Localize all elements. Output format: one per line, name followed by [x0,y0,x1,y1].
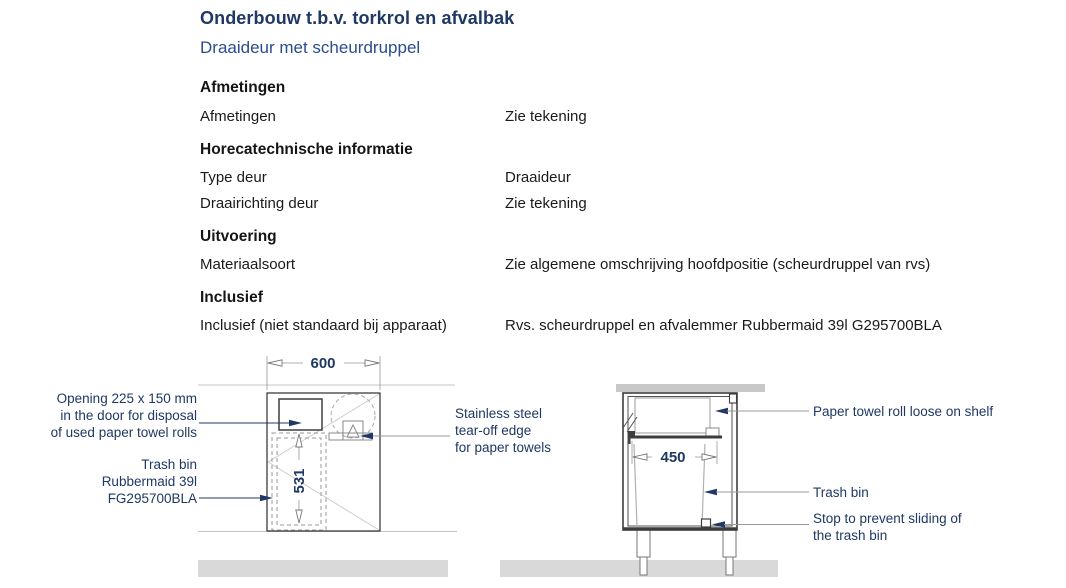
spec-value: Zie tekening [505,108,587,125]
worktop-bar [616,384,765,392]
dimension-600: 600 [267,355,380,390]
trash-bin-dashed [272,433,326,530]
annotation-tear-off: Stainless steel tear-off edge for paper … [455,405,551,456]
leader-trash-bin [199,495,273,501]
spec-value: Rvs. scheurdruppel en afvalemmer Rubberm… [505,317,942,334]
leader-tear-off [360,433,450,439]
tear-off-bracket [329,433,372,440]
annotation-stop: Stop to prevent sliding of the trash bin [813,510,962,544]
spec-label: Materiaalsoort [200,256,295,273]
bin-wall-left [634,444,637,526]
cabinet-outline [267,393,380,531]
bin-wall-right [702,444,705,526]
door-opening [279,399,322,430]
spec-label: Draairichting deur [200,195,318,212]
cabinet-inner [628,397,732,527]
cabinet-outer [623,393,737,530]
front-view-drawing: 600 531 [198,355,457,577]
tear-off-triangle [347,425,359,437]
floor-bar-right [500,560,778,577]
towel-roll [635,398,710,433]
bin-stop [702,519,711,527]
door-swing-line [268,394,379,462]
section-heading-uitvoering: Uitvoering [200,228,277,246]
leader-stop [712,521,809,527]
spec-value: Zie tekening [505,195,587,212]
floor-bar-left [198,560,448,577]
leader-roll [715,408,809,414]
hinge-notch [730,394,737,403]
towel-roll-dashed [331,394,375,438]
page-subtitle: Draaideur met scheurdruppel [200,38,420,58]
leader-trash-bin-side [704,489,809,495]
page-title: Onderbouw t.b.v. torkrol en afvalbak [200,8,514,29]
section-heading-horecatechnische-informatie: Horecatechnische informatie [200,141,413,159]
section-heading-inclusief: Inclusief [200,289,263,307]
cabinet-legs [637,530,736,575]
dimension-531-text: 531 [291,468,308,493]
annotation-trash-bin-front: Trash bin Rubbermaid 39l FG295700BLA [102,456,197,507]
annotation-trash-bin-side: Trash bin [813,484,869,501]
spec-label: Afmetingen [200,108,276,125]
spec-sheet-page: Onderbouw t.b.v. torkrol en afvalbak Dra… [0,0,1066,588]
dimension-531: 531 [291,434,308,523]
tear-off-box [343,421,363,440]
roll-stop-block [706,428,719,437]
door-swing-line [268,462,379,530]
trash-bin-dashed-inner [277,438,321,525]
dimension-450-text: 450 [660,449,685,466]
section-heading-afmetingen: Afmetingen [200,79,285,97]
spec-value: Zie algemene omschrijving hoofdpositie (… [505,256,930,273]
annotation-opening: Opening 225 x 150 mm in the door for dis… [51,390,197,441]
spec-value: Draaideur [505,169,571,186]
spec-label: Type deur [200,169,267,186]
dimension-450: 450 [632,441,717,466]
leader-opening [199,420,302,426]
dimension-600-text: 600 [310,355,335,372]
annotation-roll-shelf: Paper towel roll loose on shelf [813,403,993,420]
tear-off-clip [623,413,637,444]
spec-label: Inclusief (niet standaard bij apparaat) [200,317,447,334]
